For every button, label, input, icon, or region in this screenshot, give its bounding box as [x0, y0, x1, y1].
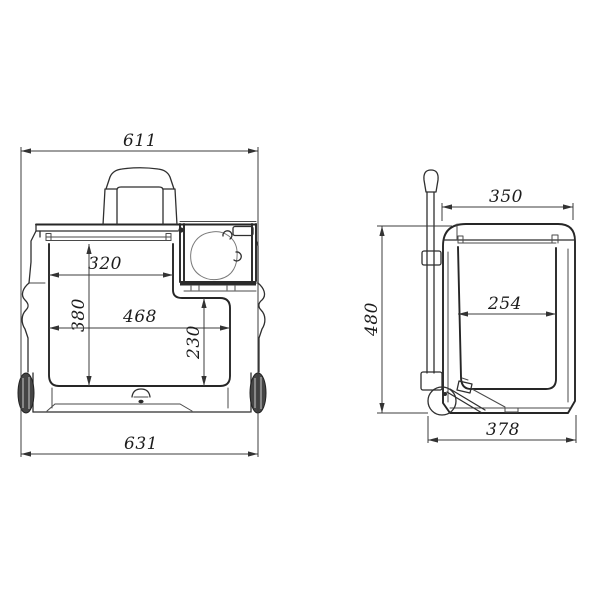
dim-label-378: 378 [486, 420, 520, 440]
dim-side-inner-depth: 254 [458, 294, 556, 317]
compartment-vent-box [233, 227, 253, 236]
dim-label-380: 380 [69, 298, 89, 332]
dim-side-top-depth: 350 [442, 187, 573, 221]
dim-front-overall-top-width: 611 [21, 131, 258, 457]
compressor-pipe-curl-side [234, 252, 241, 261]
handle-collar [422, 251, 441, 265]
dim-side-overall-height: 480 [362, 226, 452, 413]
hinge-pin-dot [178, 227, 183, 232]
dim-front-overall-bottom-width: 631 [21, 434, 258, 457]
front-drain-plug [132, 389, 150, 403]
front-machine-compartment [178, 222, 256, 292]
compartment-floor-plate [180, 281, 256, 286]
dim-front-compartment-height: 230 [184, 298, 207, 386]
dim-label-350: 350 [489, 187, 523, 207]
dim-front-inner-width-upper: 320 [49, 254, 173, 278]
dim-label-230: 230 [184, 325, 204, 360]
side-inner-cavity [457, 247, 556, 407]
technical-drawing-canvas: 611 320 380 468 [0, 0, 600, 600]
technical-drawing-page: 611 320 380 468 [0, 0, 600, 600]
dim-label-611: 611 [123, 131, 157, 151]
dim-label-480: 480 [362, 302, 382, 337]
handle-grip-knob [424, 170, 438, 192]
side-lid-gasket [458, 235, 558, 243]
side-telescopic-handle [421, 170, 442, 390]
dim-label-254: 254 [487, 294, 522, 314]
front-view: 611 320 380 468 [18, 131, 266, 457]
side-view: 350 480 254 378 [362, 170, 576, 443]
dim-label-320: 320 [88, 254, 122, 274]
front-left-wheel [18, 373, 34, 413]
front-carry-handle [103, 168, 177, 225]
front-lid-gasket [46, 234, 171, 241]
dim-side-bottom-depth: 378 [428, 415, 576, 443]
front-dimensions: 611 320 380 468 [21, 131, 258, 457]
dim-label-468: 468 [122, 307, 157, 327]
dim-label-631: 631 [124, 434, 158, 454]
